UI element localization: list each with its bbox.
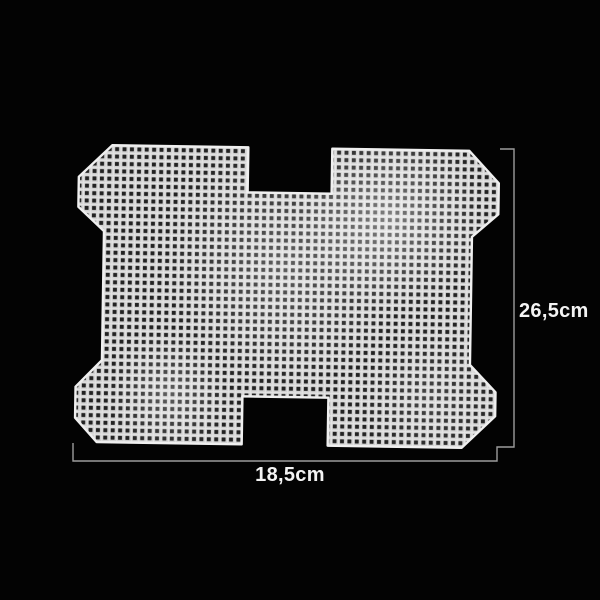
product-illustration: [0, 0, 600, 600]
product-image: 26,5cm 18,5cm: [0, 0, 600, 600]
width-dimension-label: 18,5cm: [230, 465, 350, 485]
mesh-sheet: [74, 117, 502, 469]
height-dimension-label: 26,5cm: [519, 301, 589, 321]
